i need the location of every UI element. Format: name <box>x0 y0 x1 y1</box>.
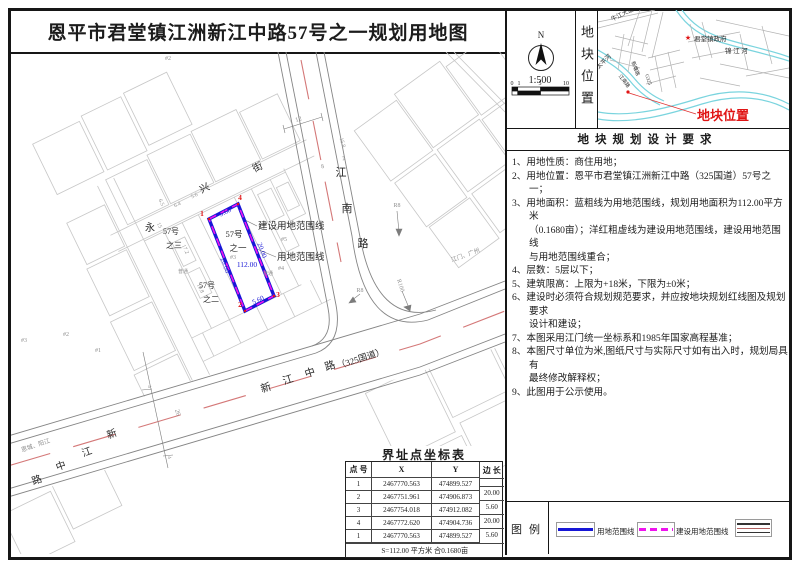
legend-header: 图例 <box>506 502 548 556</box>
map-label: 4 <box>146 385 152 389</box>
cell: 474912.082 <box>432 504 480 517</box>
divider <box>506 150 789 151</box>
col-header-y: Y <box>432 462 480 478</box>
legend-label: 建设用地范围线 <box>676 526 729 537</box>
scale-bar <box>512 87 569 95</box>
map-label: 建设用地范围线 <box>258 220 325 232</box>
col-header-x: X <box>372 462 432 478</box>
map-label: #3 <box>230 255 236 261</box>
map-label: #2 <box>165 56 171 62</box>
area-summary: S=112.00 平方米 合0.1680亩 <box>346 543 504 557</box>
map-label: 2 <box>341 156 346 163</box>
requirement-item: 9、此图用于公示使用。 <box>512 386 788 400</box>
cell: 474906.873 <box>432 491 480 504</box>
map-label: 8 <box>320 164 325 171</box>
map-label: 江 <box>80 445 94 460</box>
legend-swatch-plot-line <box>556 522 595 537</box>
divider <box>548 501 549 554</box>
map-label: R8 <box>393 203 400 209</box>
map-label: 之一 <box>229 243 247 253</box>
requirement-item: 2、用地位置：恩平市君堂镇江洲新江中路（325国道）57号之一； <box>512 170 788 197</box>
map-label: 路 <box>323 358 337 374</box>
requirement-item: 5、建筑限高：上限为+18米，下限为±0米； <box>512 278 788 292</box>
map-label: 普通 <box>263 270 273 277</box>
coordinate-table: 界址点坐标表 点 号 X Y 1 2467770.563 474899.527 … <box>345 446 503 558</box>
map-label: 2 <box>238 300 242 309</box>
legend-label: 用地范围线 <box>597 526 635 537</box>
map-label: #4 <box>278 266 284 272</box>
map-label: 4 <box>238 193 242 202</box>
cell: 4 <box>346 517 372 530</box>
map-label: 之二 <box>203 294 219 304</box>
map-label: #1 <box>95 348 101 354</box>
site-leader-line <box>629 93 696 114</box>
cell: 2467770.563 <box>372 478 432 491</box>
map-label: 新 <box>105 426 119 442</box>
cell: 2467770.563 <box>372 530 432 543</box>
cell: 2 <box>346 491 372 504</box>
cell: 2467772.620 <box>372 517 432 530</box>
map-label: R100 <box>395 279 405 293</box>
legend-swatch-road <box>735 519 772 537</box>
map-label: 锦 江 河 <box>725 46 748 55</box>
scale-tick: 1 <box>518 81 521 87</box>
map-label: 太平河 <box>598 52 613 70</box>
requirement-item: 3、用地面积：蓝粗线为用地范围线，规划用地面积为112.00平方米 （0.168… <box>512 197 788 265</box>
map-label: ★ <box>685 34 691 42</box>
requirement-item: 8、本图尺寸单位为米,图纸尺寸与实际尺寸如有出入时，规划局具有 最终修改解释权； <box>512 345 788 386</box>
map-label: （325国道） <box>335 345 385 371</box>
map-label: 之三 <box>166 240 182 250</box>
map-label: 江门、广州 <box>450 246 481 264</box>
map-label: G325 <box>643 74 651 87</box>
map-label: 牛江大道 <box>610 10 635 23</box>
north-label: N <box>538 30 545 40</box>
requirement-item: 7、本图采用江门统一坐标系和1985年国家高程基准； <box>512 332 788 346</box>
cell: 1 <box>346 478 372 491</box>
map-label: 12 <box>294 115 302 124</box>
map-label: 57号 <box>199 281 215 290</box>
map-label: 57号 <box>225 229 242 239</box>
requirements-header: 地块规划设计要求 <box>506 128 789 150</box>
cell: 2467754.018 <box>372 504 432 517</box>
map-label: 江 <box>281 373 295 388</box>
map-label: 6.5 <box>157 198 166 207</box>
requirements-list: 1、用地性质：商住用地； 2、用地位置：恩平市君堂镇江洲新江中路（325国道）5… <box>512 156 788 399</box>
col-header-edge: 边 长 <box>480 462 504 479</box>
title-band: 恩平市君堂镇江洲新江中路57号之一规划用地图 <box>11 11 505 54</box>
page-title: 恩平市君堂镇江洲新江中路57号之一规划用地图 <box>47 18 468 45</box>
legend-swatch-construction-line <box>637 522 675 537</box>
location-map: 牛江大道太平河新塘路江南路G325★君堂镇政府锦 江 河地块位置 <box>598 10 789 128</box>
edge-length: 5.60 <box>480 528 504 542</box>
map-label: #5 <box>281 237 287 243</box>
cell: 3 <box>346 504 372 517</box>
cell: 2467751.961 <box>372 491 432 504</box>
map-label: 地块位置 <box>697 108 749 123</box>
map-label: 永 <box>145 221 155 234</box>
rivers <box>598 10 789 121</box>
map-label: 57号 <box>163 227 179 236</box>
scale-tick: 5 <box>539 81 542 87</box>
scale-tick: 10 <box>563 81 569 87</box>
table-row: 1 2467770.563 474899.527 <box>346 478 480 491</box>
map-label: 新 <box>259 380 273 396</box>
map-label: 江 <box>336 166 347 179</box>
edge-length: 5.60 <box>480 500 504 514</box>
table-row: 1 2467770.563 474899.527 <box>346 530 480 543</box>
map-label: 112.00 <box>237 260 258 269</box>
compass-block: N 1:500 0 1 5 10 <box>507 9 575 127</box>
requirement-item: 6、建设时必须符合规划规范要求，并应按地块规划红线图及规划要求 设计和建设； <box>512 291 788 332</box>
scale-tick: 0 <box>511 81 514 87</box>
cell: 474899.527 <box>432 530 480 543</box>
map-label: 南 <box>342 202 353 215</box>
requirement-item: 1、用地性质：商住用地； <box>512 156 788 170</box>
map-label: 1 <box>200 209 204 218</box>
map-label: 中 <box>54 458 68 474</box>
map-label: R8 <box>356 288 363 294</box>
cell: 474904.736 <box>432 517 480 530</box>
coordinate-table-title: 界址点坐标表 <box>345 446 503 461</box>
table-row: 4 2467772.620 474904.736 <box>346 517 480 530</box>
map-label: 3 <box>276 290 280 299</box>
map-label: 普通 <box>178 268 188 275</box>
table-row: 3 2467754.018 474912.082 <box>346 504 480 517</box>
table-row: 2 2467751.961 474906.873 <box>346 491 480 504</box>
col-header-point: 点 号 <box>346 462 372 478</box>
edge-length: 20.00 <box>480 486 504 500</box>
map-label: 用地范围线 <box>277 251 325 263</box>
requirement-item: 4、层数：5层以下； <box>512 264 788 278</box>
location-side-label: 地块位置 <box>576 10 597 127</box>
map-label: 15.8 <box>338 137 347 148</box>
map-label: 兴 <box>198 181 212 196</box>
map-label: #3 <box>21 338 27 344</box>
map-label: 路 <box>30 472 44 488</box>
cell: 474899.527 <box>432 478 480 491</box>
map-label: #2 <box>63 332 69 338</box>
map-label: 15 <box>155 222 163 230</box>
edge-length: 20.00 <box>480 514 504 528</box>
plan-sheet: 恩平市君堂镇江洲新江中路57号之一规划用地图 <box>0 0 800 566</box>
map-label: 4 <box>166 456 172 460</box>
edge-length-column: 边 长 20.00 5.60 20.00 5.60 <box>480 462 504 543</box>
map-label: 路 <box>358 237 369 250</box>
cell: 1 <box>346 530 372 543</box>
map-label: 君堂镇政府 <box>694 34 727 43</box>
